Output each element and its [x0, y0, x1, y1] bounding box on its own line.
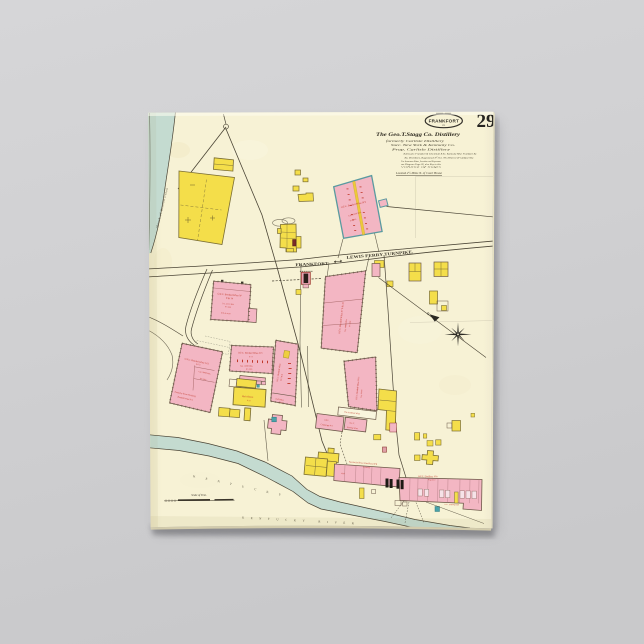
svg-text:Ky. Distillery, Registered Nº1: Ky. Distillery, Registered Nº113, 7th Di… [403, 157, 474, 160]
svg-text:O.F.C. Distillery Nº8: O.F.C. Distillery Nº8 [418, 476, 438, 478]
svg-text:Succ. New York & Kentucky Co.: Succ. New York & Kentucky Co. [391, 144, 456, 147]
svg-text:volume of maps: volume of maps [401, 165, 442, 168]
svg-text:B'lt 1880: B'lt 1880 [246, 369, 252, 371]
svg-text:Prop. Carlisle Distillery: Prop. Carlisle Distillery [390, 148, 452, 151]
svg-text:O.F.C. Bottling Dept: O.F.C. Bottling Dept [444, 503, 460, 506]
svg-text:The Geo.T.Stagg Co. Distillery: The Geo.T.Stagg Co. Distillery [376, 132, 461, 138]
svg-text:& Co: & Co [249, 356, 253, 358]
svg-text:formerly Carlisle Distillery: formerly Carlisle Distillery [386, 139, 445, 143]
svg-text:see Diagram Page 28, also Key: see Diagram Page 28, also Key to this [401, 163, 441, 166]
svg-text:FRANKFORT: FRANKFORT [429, 119, 459, 124]
svg-text:Railroads: Frankfort & Cincinn: Railroads: Frankfort & Cincinnati R.R.; … [402, 153, 477, 156]
svg-text:Scale of Feet.: Scale of Feet. [191, 494, 207, 497]
svg-text:For Insurance Rates, Location: For Insurance Rates, Location and Exposu… [400, 160, 441, 163]
svg-text:O.F.C. Bonded Whse Nº1: O.F.C. Bonded Whse Nº1 [238, 352, 263, 355]
svg-text:Located 2½ Miles N. of Court H: Located 2½ Miles N. of Court House [395, 172, 443, 175]
svg-text:Mash: Mash [341, 473, 345, 475]
svg-text:& Co: & Co [247, 400, 251, 402]
svg-text:Cap. 16000 Bbls: Cap. 16000 Bbls [240, 366, 253, 368]
svg-text:KY.: KY. [442, 125, 445, 127]
svg-text:Registered: Registered [428, 478, 435, 481]
